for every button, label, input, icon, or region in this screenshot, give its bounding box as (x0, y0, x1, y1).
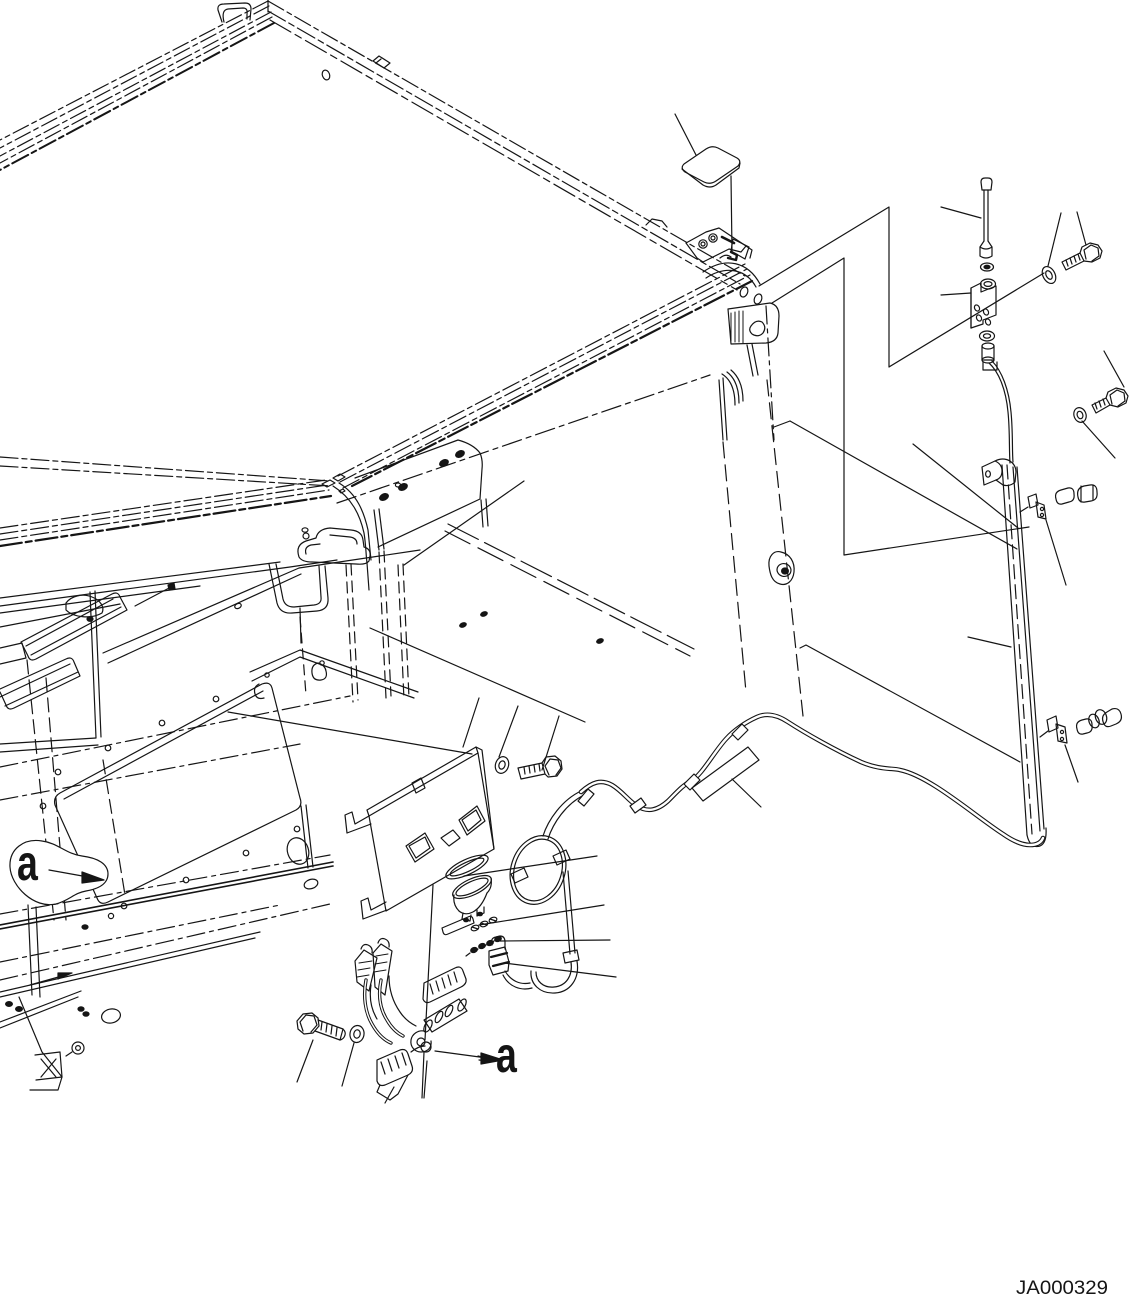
svg-text:JA000329: JA000329 (1016, 1278, 1108, 1295)
svg-text:a: a (17, 836, 38, 891)
svg-text:a: a (496, 1028, 517, 1083)
